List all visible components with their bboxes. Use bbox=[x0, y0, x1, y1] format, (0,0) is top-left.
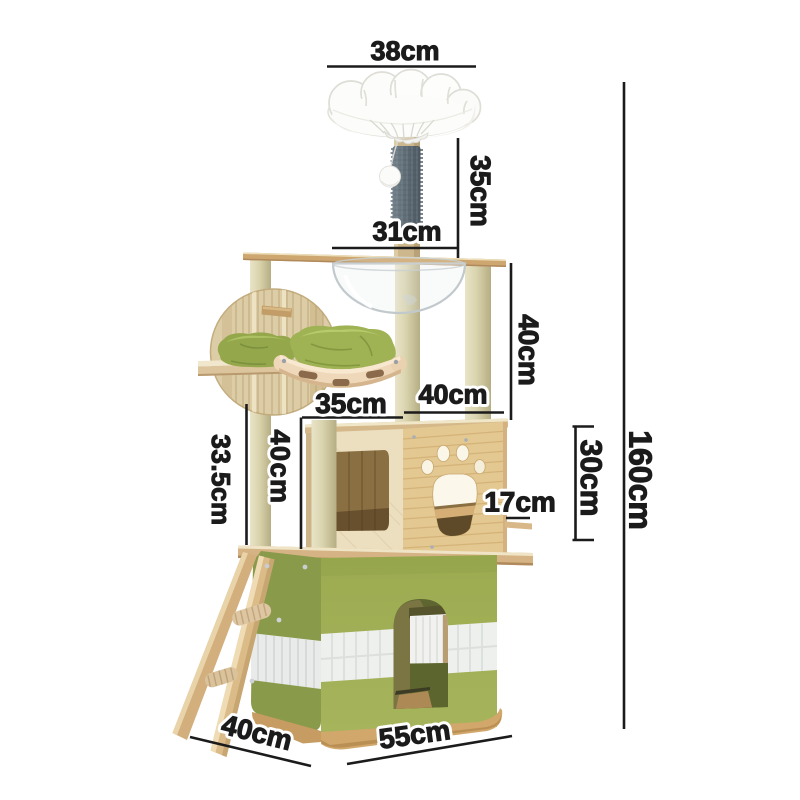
svg-text:31cm: 31cm bbox=[372, 217, 441, 247]
svg-text:160cm: 160cm bbox=[623, 430, 659, 530]
svg-text:40cm: 40cm bbox=[418, 380, 487, 410]
svg-text:30cm: 30cm bbox=[574, 440, 607, 517]
svg-text:35cm: 35cm bbox=[315, 388, 387, 419]
svg-text:40cm: 40cm bbox=[265, 429, 295, 504]
svg-text:35cm: 35cm bbox=[465, 155, 496, 227]
svg-text:33.5cm: 33.5cm bbox=[206, 434, 236, 525]
svg-text:17cm: 17cm bbox=[484, 487, 556, 518]
svg-text:38cm: 38cm bbox=[370, 36, 439, 66]
svg-text:40cm: 40cm bbox=[513, 314, 544, 386]
